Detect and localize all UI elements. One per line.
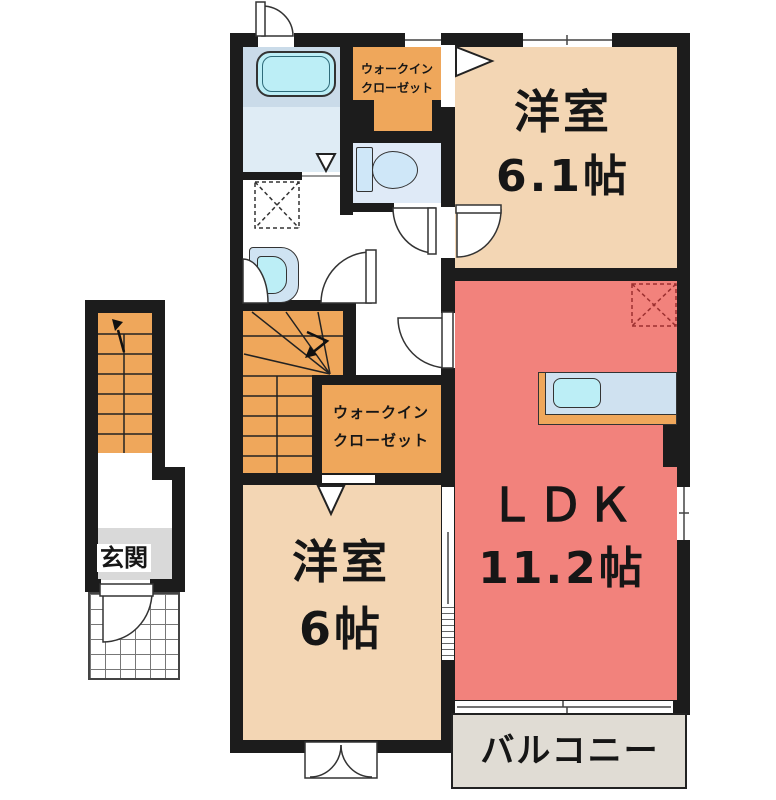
annex-wall-right-lower <box>172 467 185 592</box>
window-top-small <box>405 33 441 47</box>
western-room-top-size: 6.1帖 <box>496 155 630 199</box>
western-room-bottom-size: 6帖 <box>299 606 383 652</box>
bathroom-floor-lower <box>243 107 340 172</box>
wall-outer-right <box>677 33 690 715</box>
entrance-label: 玄関 <box>97 544 151 572</box>
window-ldk-right <box>677 487 690 540</box>
entry-door-swing-icon <box>262 6 293 36</box>
walk-in-closet-top-floor-ext <box>374 100 432 131</box>
wall-outer-bottom-west <box>230 740 455 753</box>
wic-top-label-line2: クローゼット <box>361 82 433 94</box>
annex-wall-bottom-right <box>150 579 185 592</box>
bathtub-inner-rim <box>262 56 330 92</box>
annex-wall-bottom-left <box>85 579 101 592</box>
ldk-size: 11.2帖 <box>478 547 646 591</box>
sliding-door-pocket <box>442 607 454 660</box>
wall-kitchen-jog <box>663 425 690 467</box>
wall-winder-right <box>343 300 356 380</box>
wic-middle-label-line1: ウォークイン <box>333 406 429 421</box>
wall-toilet-bottom <box>340 203 394 212</box>
balcony-label: バルコニー <box>480 734 659 768</box>
window-top-main <box>523 33 612 47</box>
wall-bath-right <box>340 45 353 215</box>
wall-wic2-left <box>312 375 322 483</box>
entry-door-opening <box>258 33 294 47</box>
stairs-upper-floor <box>243 311 343 375</box>
sliding-door-bedroom2-ldk <box>442 487 454 607</box>
western-room-bottom-name: 洋室 <box>292 539 390 585</box>
entry-door-leaf <box>256 2 265 36</box>
walk-in-closet-middle-floor <box>322 385 441 473</box>
wall-bath-bottom <box>242 172 302 180</box>
wall-stairs-bottom <box>242 473 322 485</box>
western-room-top-name: 洋室 <box>514 89 612 135</box>
wall-wic2-top <box>312 375 455 385</box>
wall-outer-left <box>230 33 243 753</box>
annex-wall-right-upper <box>152 300 165 480</box>
ldk-name: ＬＤＫ <box>489 482 636 528</box>
washbasin-bowl <box>257 256 287 294</box>
wic2-door-opening <box>322 475 375 483</box>
wall-room-divider-h <box>455 268 690 281</box>
stairs-lower-floor <box>243 375 312 473</box>
toilet-tank <box>356 147 373 192</box>
wic1-door-opening <box>441 45 455 107</box>
floorplan-canvas: 洋室 6.1帖 ＬＤＫ 11.2帖 洋室 6帖 ウォークイン クローゼット ウォ… <box>0 0 776 800</box>
bedroom1-door-opening <box>441 207 455 258</box>
hall-ldk-door-opening <box>441 313 455 368</box>
kitchen-sink <box>553 378 601 408</box>
annex-stairs-floor <box>98 313 152 453</box>
wic-top-label-line1: ウォークイン <box>361 63 433 75</box>
wall-outer-top <box>230 33 690 47</box>
window-ldk-bottom <box>455 701 673 713</box>
entrance-porch-tiles <box>88 592 180 680</box>
wic-middle-label-line2: クローゼット <box>333 434 429 449</box>
